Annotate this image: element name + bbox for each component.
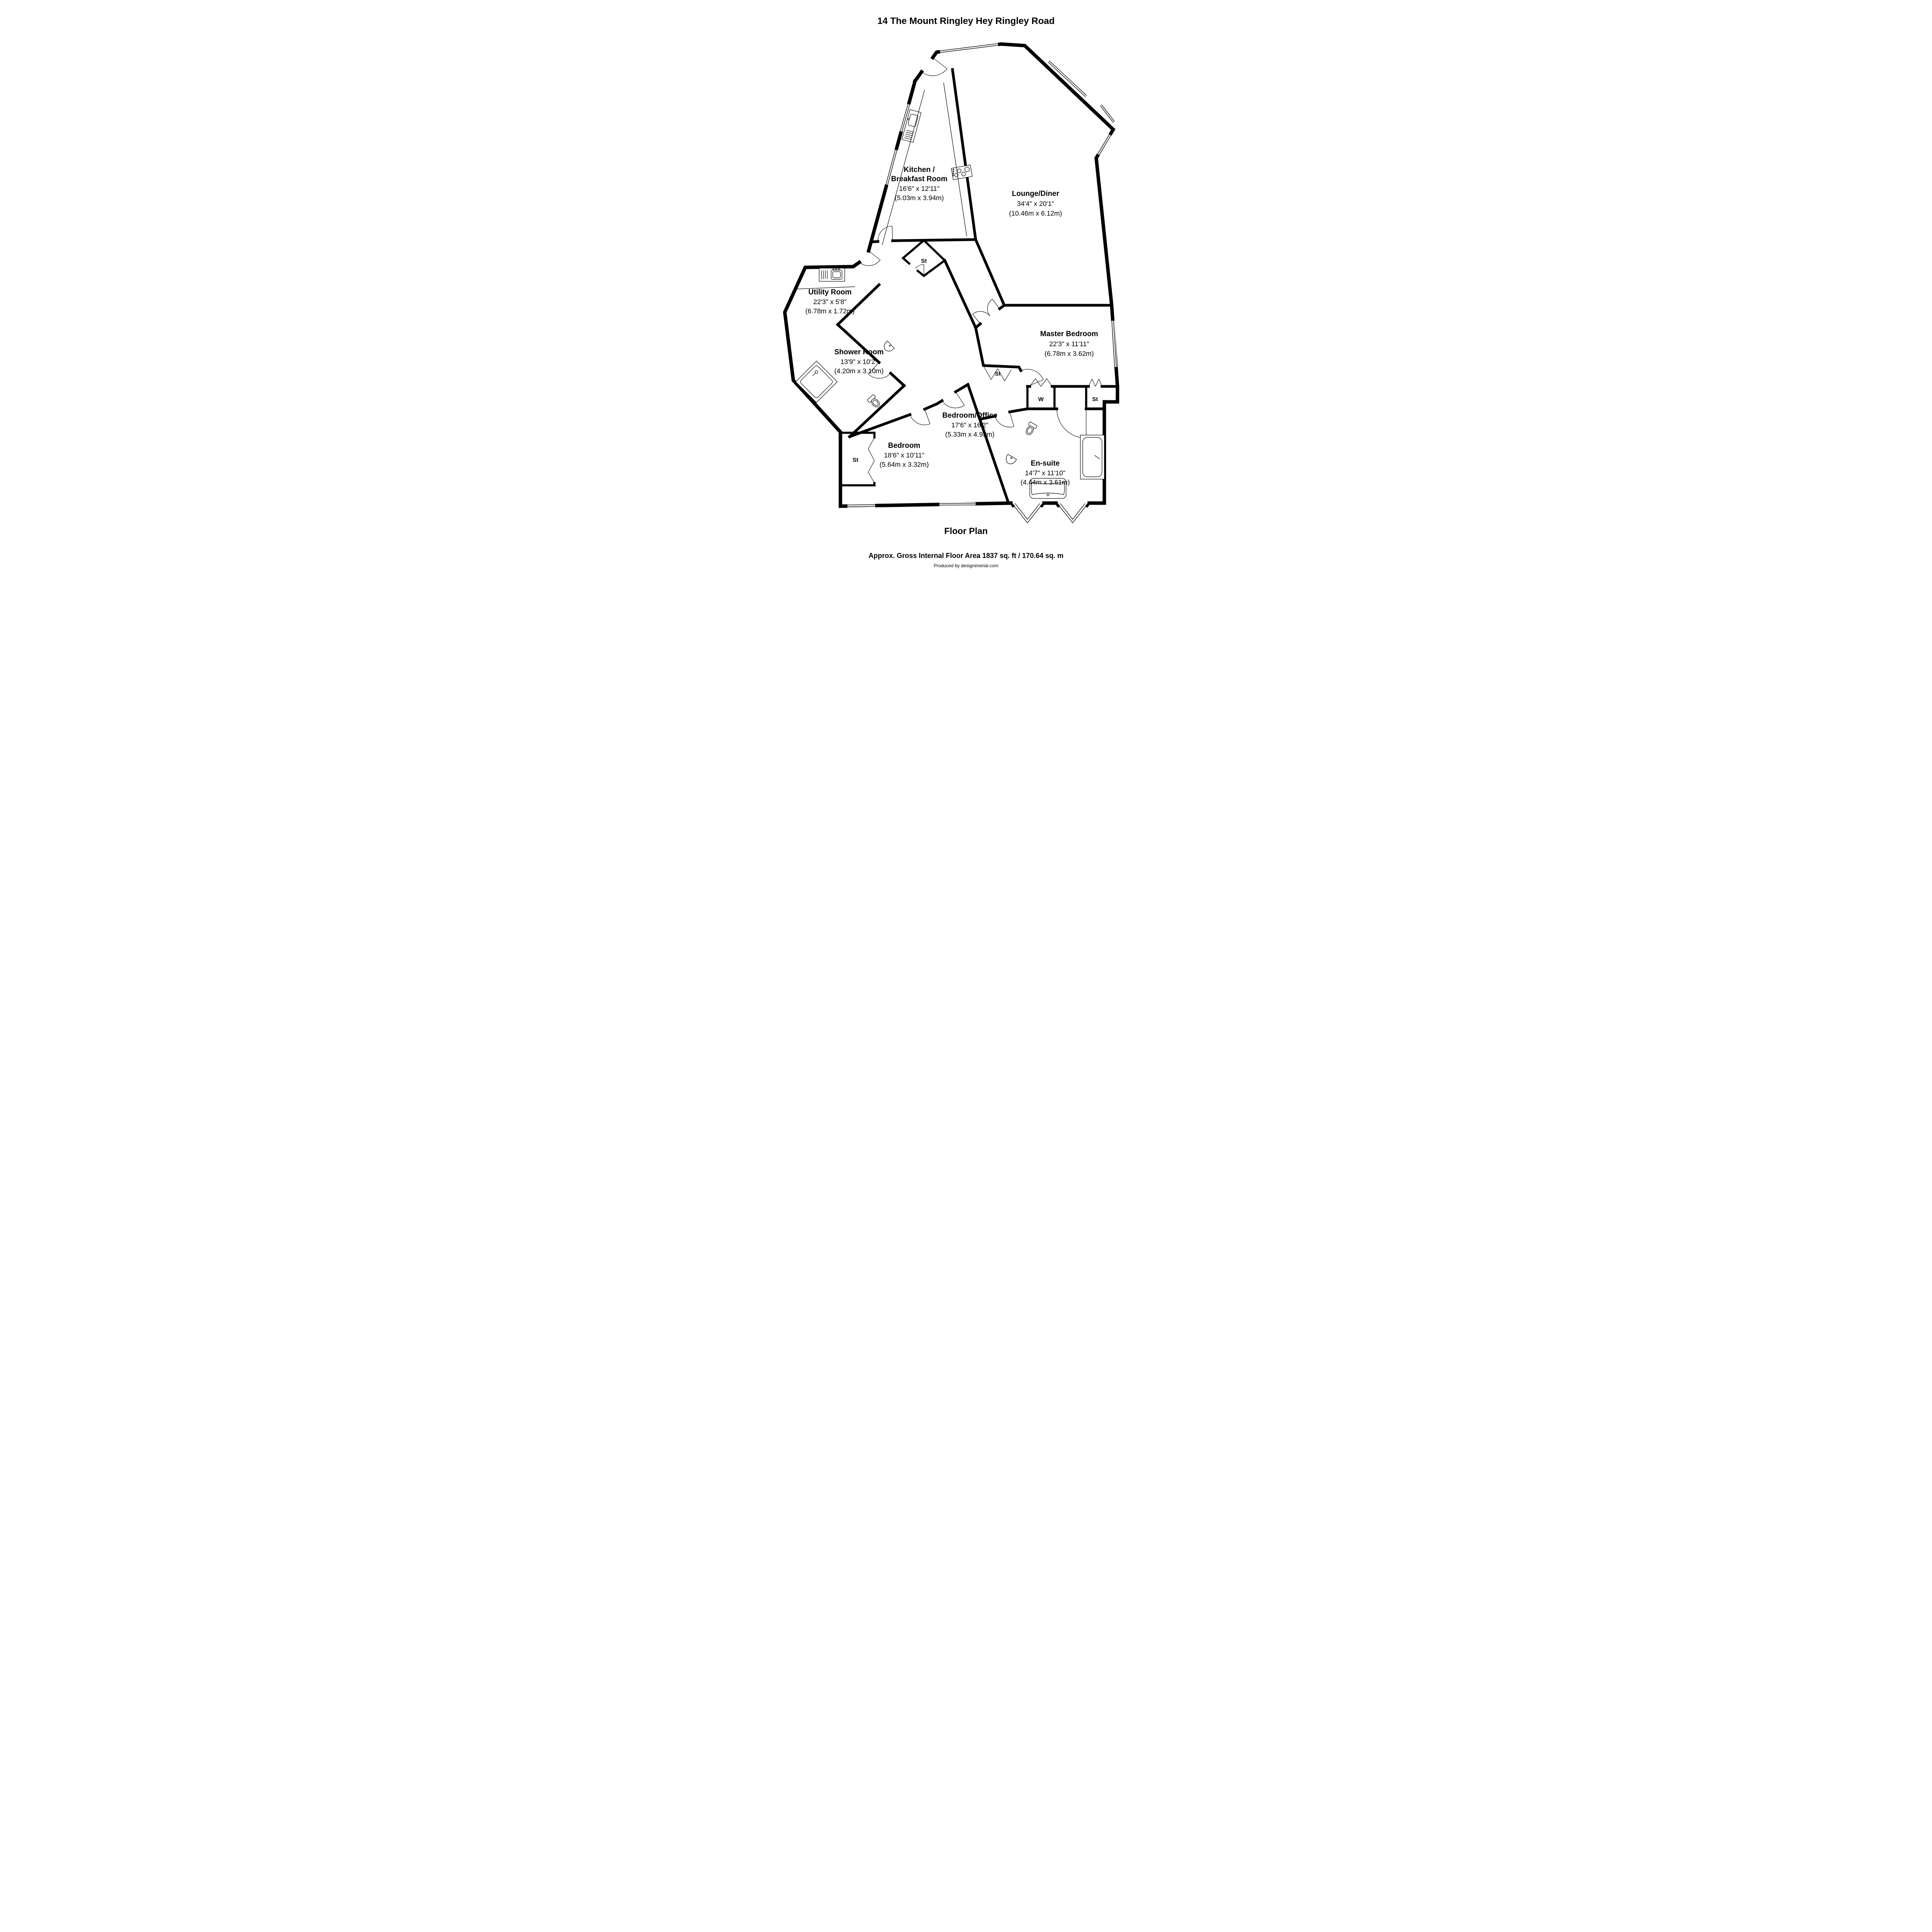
lounge-double-door-right: [987, 299, 1000, 316]
storage-label-bedroom: St: [852, 457, 858, 463]
bay-window-left: [1012, 503, 1043, 523]
master-label-metric: (6.78m x 3.62m): [1044, 350, 1094, 357]
office-label-imperial: 17'6" x 16'2": [951, 421, 988, 429]
bedroom-label-name: Bedroom: [888, 442, 920, 450]
storage-label-hall: St: [921, 258, 927, 264]
lounge-double-door-left: [973, 311, 990, 324]
producer-credit: Produced by designimerial.com: [934, 563, 998, 568]
windows: [847, 44, 1116, 523]
basin-ensuite: [1004, 454, 1017, 466]
floor-plan-page: 14 The Mount Ringley Hey Ringley Road Ki…: [759, 0, 1173, 586]
master-label-imperial: 22'3" x 11'11": [1049, 340, 1089, 348]
kitchen-label-name1: Kitchen /: [903, 166, 935, 174]
office-label-metric: (5.33m x 4.93m): [945, 430, 994, 438]
bedroom-door: [910, 409, 930, 425]
floor-area-text: Approx. Gross Internal Floor Area 1837 s…: [868, 552, 1063, 560]
ensuite-label-metric: (4.44m x 3.61m): [1020, 478, 1070, 486]
floor-plan-heading: Floor Plan: [944, 526, 987, 536]
bedroom-closet-bifold-door: [868, 437, 874, 483]
utility-label-imperial: 22'3" x 5'8": [813, 298, 846, 306]
shower-label-imperial: 13'9" x 10'2": [840, 358, 878, 366]
wardrobe-label: W: [1038, 396, 1044, 403]
master-label-name: Master Bedroom: [1040, 330, 1098, 338]
ensuite-label-imperial: 14'7" x 11'10": [1025, 469, 1065, 477]
lounge-label-metric: (10.46m x 6.12m): [1009, 209, 1062, 217]
storage-label-corridor: St: [995, 371, 1000, 377]
wardrobe-bifold-door: [1030, 379, 1052, 386]
office-label-name: Bedroom/Office: [942, 412, 997, 420]
shower-enclosure: [1080, 435, 1104, 479]
shower-label-name: Shower Room: [834, 348, 884, 356]
page-title: 14 The Mount Ringley Hey Ringley Road: [877, 16, 1054, 26]
bedroom-label-imperial: 18'6" x 10'11": [884, 451, 924, 459]
kitchen-label-imperial: 16'6" x 12'11": [899, 185, 939, 192]
kitchen-counter-right: [944, 83, 967, 236]
kitchen-label-name2: Breakfast Room: [891, 175, 947, 183]
entry-door: [922, 58, 947, 76]
storage-label-master: St: [1092, 396, 1098, 403]
utility-sink: [819, 268, 845, 281]
toilet-ensuite: [1024, 422, 1037, 437]
shower-label-metric: (4.20m x 3.10m): [834, 367, 883, 375]
floor-plan-drawing: 14 The Mount Ringley Hey Ringley Road Ki…: [759, 0, 1173, 586]
bedroom-office-door: [942, 392, 964, 408]
kitchen-label-metric: (5.03m x 3.94m): [895, 194, 944, 202]
ensuite-door: [995, 412, 1014, 427]
master-ensuite-door: [1057, 409, 1086, 438]
shower-tray: [796, 361, 837, 402]
basin-shower-room: [882, 341, 894, 354]
utility-label-metric: (6.78m x 1.72m): [805, 307, 854, 315]
rear-door: [859, 251, 880, 266]
lounge-label-name: Lounge/Diner: [1012, 190, 1059, 198]
storage-bifold-door: [1088, 379, 1102, 386]
bedroom-label-metric: (5.64m x 3.32m): [879, 461, 929, 468]
lounge-label-imperial: 34'4" x 20'1": [1017, 200, 1054, 207]
utility-label-name: Utility Room: [808, 288, 852, 296]
ensuite-label-name: En-suite: [1031, 459, 1060, 468]
hob: [951, 165, 972, 180]
master-bedroom-door: [1021, 369, 1043, 386]
bay-window-right: [1058, 503, 1088, 523]
